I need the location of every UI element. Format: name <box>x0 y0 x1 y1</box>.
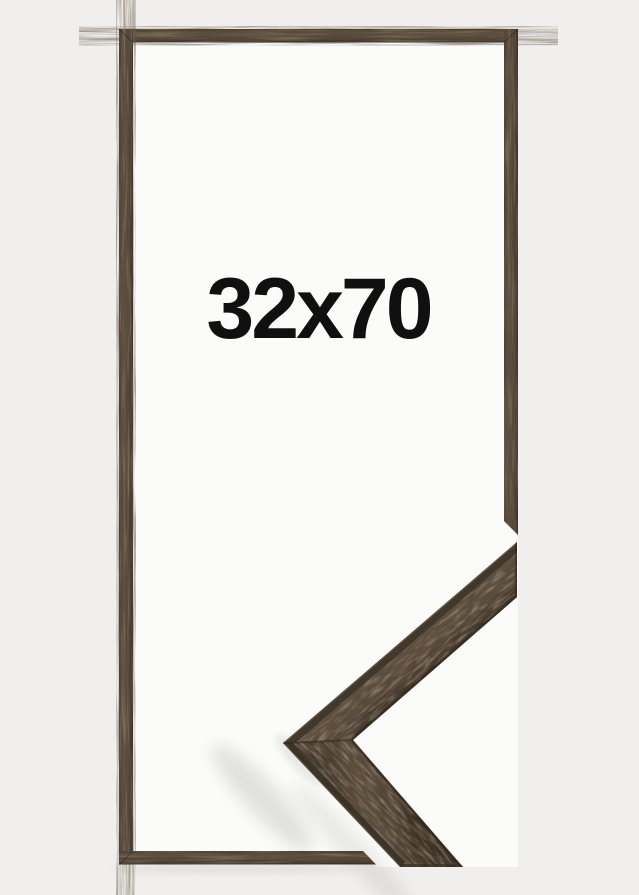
frame-graphic <box>0 0 639 895</box>
frame-product-image: 32x70 <box>0 0 639 895</box>
outline-shadow <box>110 865 360 874</box>
frame-outline-bottom <box>119 851 377 865</box>
frame-size-label: 32x70 <box>119 266 518 352</box>
frame-outline-left <box>119 29 133 865</box>
frame-outline-top <box>119 29 518 43</box>
